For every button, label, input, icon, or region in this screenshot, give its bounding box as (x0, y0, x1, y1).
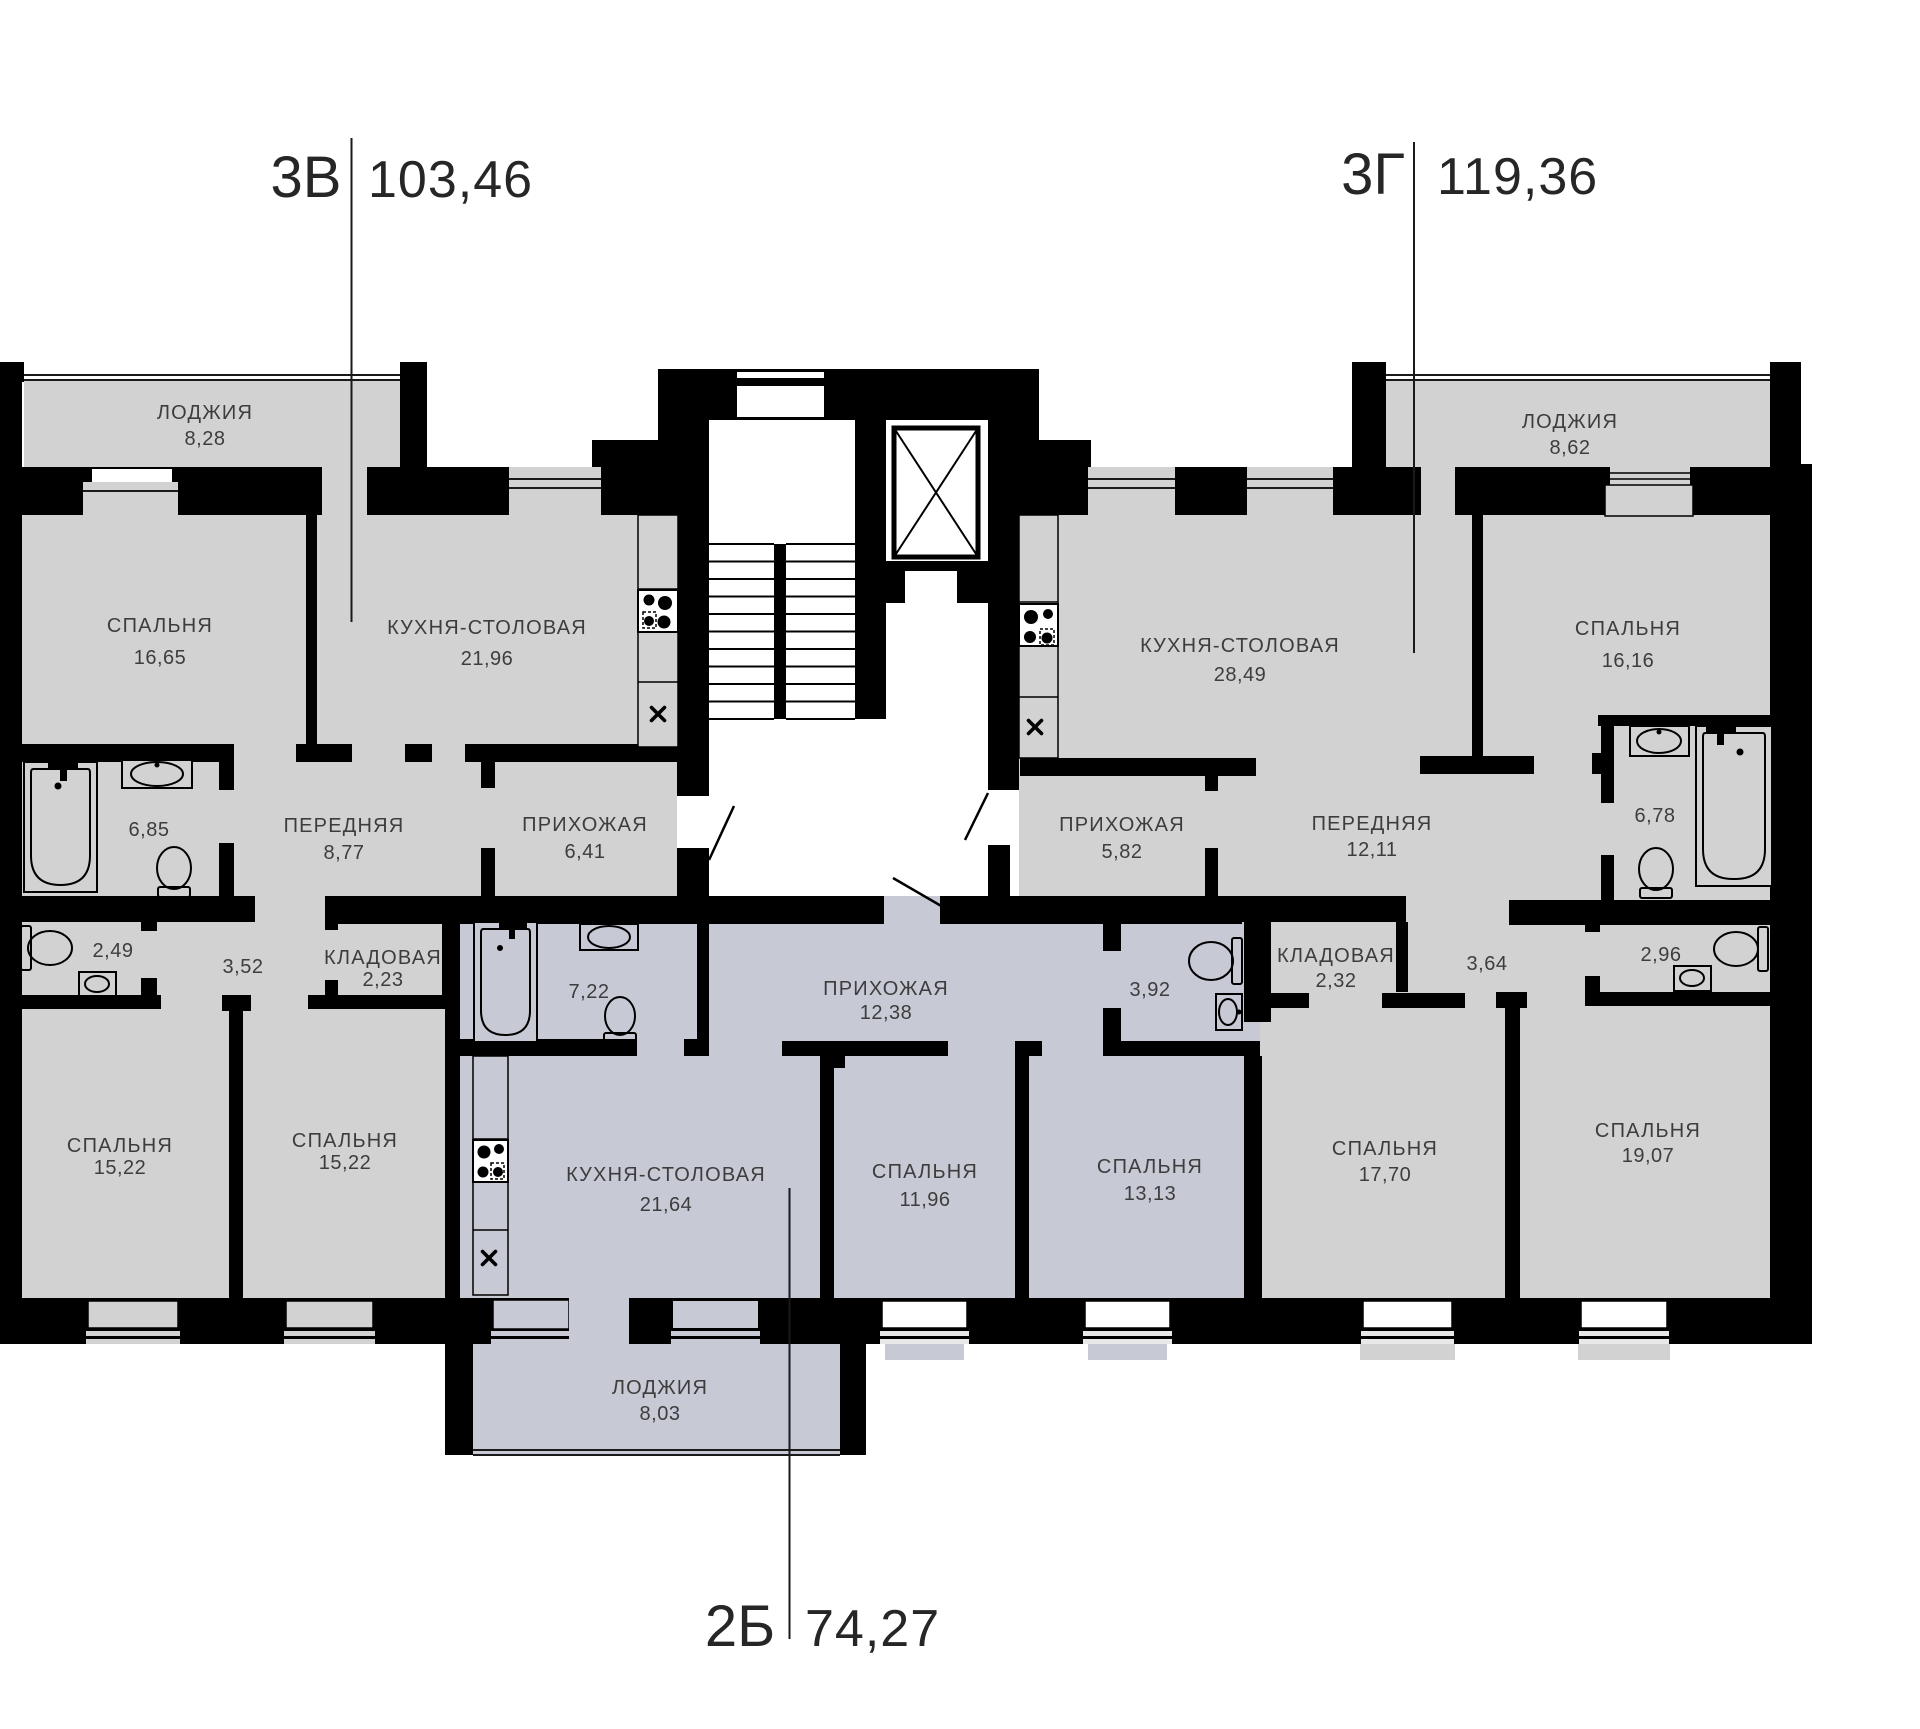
svg-text:12,11: 12,11 (1346, 839, 1397, 861)
svg-text:СПАЛЬНЯ: СПАЛЬНЯ (872, 1161, 978, 1183)
svg-text:74,27: 74,27 (805, 1600, 940, 1658)
svg-text:119,36: 119,36 (1437, 148, 1598, 206)
svg-text:6,78: 6,78 (1635, 805, 1676, 827)
svg-text:17,70: 17,70 (1359, 1164, 1412, 1186)
svg-text:7,22: 7,22 (569, 981, 610, 1003)
svg-text:ЛОДЖИЯ: ЛОДЖИЯ (157, 402, 253, 424)
svg-text:СПАЛЬНЯ: СПАЛЬНЯ (67, 1135, 173, 1157)
svg-text:3Г: 3Г (1341, 142, 1405, 207)
svg-text:3,92: 3,92 (1130, 979, 1171, 1001)
svg-text:2,23: 2,23 (363, 969, 404, 991)
svg-text:8,62: 8,62 (1550, 437, 1591, 459)
svg-text:СПАЛЬНЯ: СПАЛЬНЯ (1575, 618, 1681, 640)
svg-text:8,03: 8,03 (640, 1403, 681, 1425)
svg-text:3,64: 3,64 (1467, 953, 1508, 975)
svg-text:3,52: 3,52 (223, 956, 264, 978)
svg-text:2,96: 2,96 (1641, 944, 1682, 966)
svg-text:КУХНЯ-СТОЛОВАЯ: КУХНЯ-СТОЛОВАЯ (566, 1164, 766, 1186)
svg-text:21,96: 21,96 (461, 648, 514, 670)
svg-text:КЛАДОВАЯ: КЛАДОВАЯ (1277, 945, 1395, 967)
svg-text:СПАЛЬНЯ: СПАЛЬНЯ (107, 615, 213, 637)
svg-text:16,16: 16,16 (1602, 650, 1655, 672)
svg-text:16,65: 16,65 (134, 647, 187, 669)
svg-text:28,49: 28,49 (1214, 664, 1267, 686)
svg-text:12,38: 12,38 (860, 1002, 913, 1024)
svg-text:21,64: 21,64 (640, 1194, 693, 1216)
svg-text:2,32: 2,32 (1316, 970, 1357, 992)
svg-text:СПАЛЬНЯ: СПАЛЬНЯ (292, 1130, 398, 1152)
svg-text:ЛОДЖИЯ: ЛОДЖИЯ (1522, 411, 1618, 433)
svg-text:6,85: 6,85 (129, 819, 170, 841)
svg-text:ПРИХОЖАЯ: ПРИХОЖАЯ (1059, 814, 1185, 836)
svg-text:8,77: 8,77 (324, 842, 365, 864)
svg-text:СПАЛЬНЯ: СПАЛЬНЯ (1097, 1156, 1203, 1178)
svg-text:13,13: 13,13 (1124, 1183, 1177, 1205)
svg-text:КУХНЯ-СТОЛОВАЯ: КУХНЯ-СТОЛОВАЯ (387, 617, 587, 639)
svg-text:8,28: 8,28 (185, 428, 226, 450)
svg-text:11,96: 11,96 (899, 1189, 950, 1211)
svg-text:19,07: 19,07 (1622, 1145, 1675, 1167)
svg-text:СПАЛЬНЯ: СПАЛЬНЯ (1332, 1138, 1438, 1160)
svg-text:СПАЛЬНЯ: СПАЛЬНЯ (1595, 1120, 1701, 1142)
svg-text:2Б: 2Б (705, 1594, 775, 1659)
svg-text:6,41: 6,41 (565, 841, 606, 863)
svg-text:КУХНЯ-СТОЛОВАЯ: КУХНЯ-СТОЛОВАЯ (1140, 635, 1340, 657)
svg-text:5,82: 5,82 (1102, 841, 1143, 863)
svg-text:ПЕРЕДНЯЯ: ПЕРЕДНЯЯ (284, 815, 405, 837)
svg-text:ПРИХОЖАЯ: ПРИХОЖАЯ (823, 978, 949, 1000)
svg-text:15,22: 15,22 (319, 1152, 372, 1174)
svg-text:ПРИХОЖАЯ: ПРИХОЖАЯ (522, 814, 648, 836)
svg-text:ЛОДЖИЯ: ЛОДЖИЯ (612, 1377, 708, 1399)
svg-text:ПЕРЕДНЯЯ: ПЕРЕДНЯЯ (1312, 813, 1433, 835)
svg-text:2,49: 2,49 (93, 940, 134, 962)
svg-text:15,22: 15,22 (94, 1157, 147, 1179)
svg-text:103,46: 103,46 (368, 151, 533, 209)
svg-text:КЛАДОВАЯ: КЛАДОВАЯ (324, 947, 442, 969)
svg-text:3В: 3В (271, 145, 342, 210)
